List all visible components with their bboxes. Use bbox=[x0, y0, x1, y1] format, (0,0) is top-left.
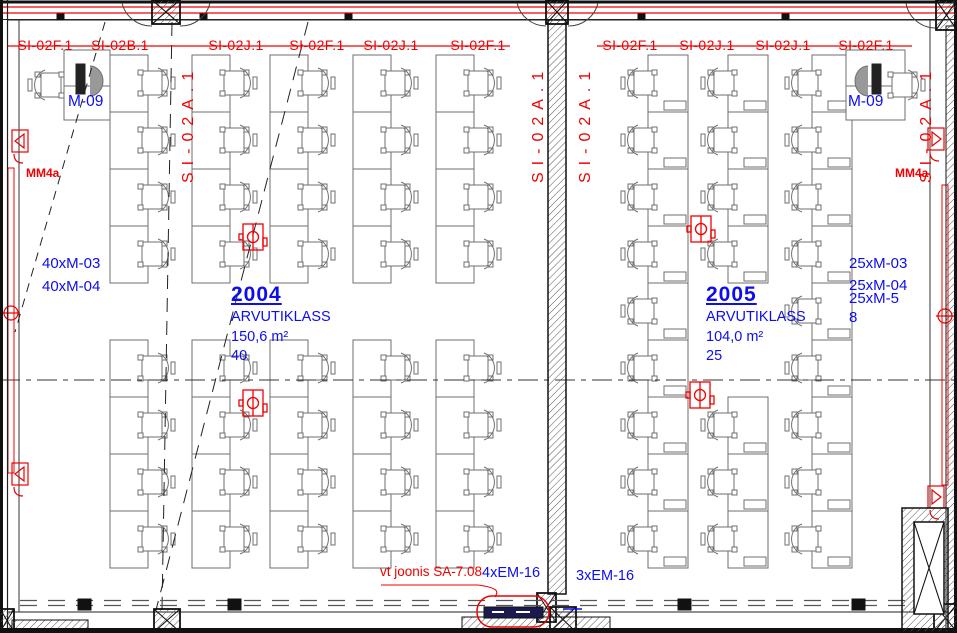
workstation-label-2004: M-09 bbox=[68, 94, 103, 110]
si-run-label: SI-02J.1 bbox=[755, 38, 810, 52]
wall-label-right: MM4a bbox=[895, 167, 928, 179]
room-name: ARVUTIKLASS bbox=[706, 310, 806, 325]
equipment-label: 40xM-04 bbox=[42, 279, 100, 294]
equipment-label: 40xM-03 bbox=[42, 256, 100, 271]
room-capacity: 40 bbox=[231, 349, 247, 364]
em-label-left: 4xEM-16 bbox=[482, 566, 540, 581]
equipment-label: 25xM-03 bbox=[849, 256, 907, 271]
room-capacity: 25 bbox=[706, 349, 722, 364]
workstation-label-2005: M-09 bbox=[848, 94, 883, 110]
si-run-label: SI-02F.1 bbox=[838, 38, 893, 52]
wall-label-left: MM4a bbox=[26, 167, 59, 179]
reference-note: vt joonis SA-7.08 bbox=[380, 565, 482, 579]
si-run-label: SI-02F.1 bbox=[17, 38, 72, 52]
equipment-label: 8 bbox=[849, 310, 857, 325]
floor-plan: SI-02F.1 SI-02B.1 SI-02J.1 SI-02F.1 SI-0… bbox=[0, 0, 957, 633]
room-number: 2004 bbox=[231, 284, 282, 305]
room-number: 2005 bbox=[706, 284, 757, 305]
em-label-right: 3xEM-16 bbox=[576, 569, 634, 584]
si-run-label: SI-02F.1 bbox=[602, 38, 657, 52]
si-run-label: SI-02J.1 bbox=[679, 38, 734, 52]
si-vertical-label: SI-02A.1 bbox=[181, 65, 197, 183]
room-name: ARVUTIKLASS bbox=[231, 310, 331, 325]
si-run-label: SI-02F.1 bbox=[450, 38, 505, 52]
si-run-label: SI-02J.1 bbox=[208, 38, 263, 52]
equipment-label: 25xM-5 bbox=[849, 291, 899, 306]
room-area: 150,6 m² bbox=[231, 330, 288, 345]
si-run-label: SI-02J.1 bbox=[363, 38, 418, 52]
floor-plan-canvas bbox=[0, 0, 957, 633]
room-area: 104,0 m² bbox=[706, 330, 763, 345]
si-run-label: SI-02F.1 bbox=[289, 38, 344, 52]
si-vertical-label: SI-02A.1 bbox=[578, 65, 594, 183]
si-vertical-label: SI-02A.1 bbox=[531, 65, 547, 183]
si-run-label: SI-02B.1 bbox=[91, 38, 149, 52]
